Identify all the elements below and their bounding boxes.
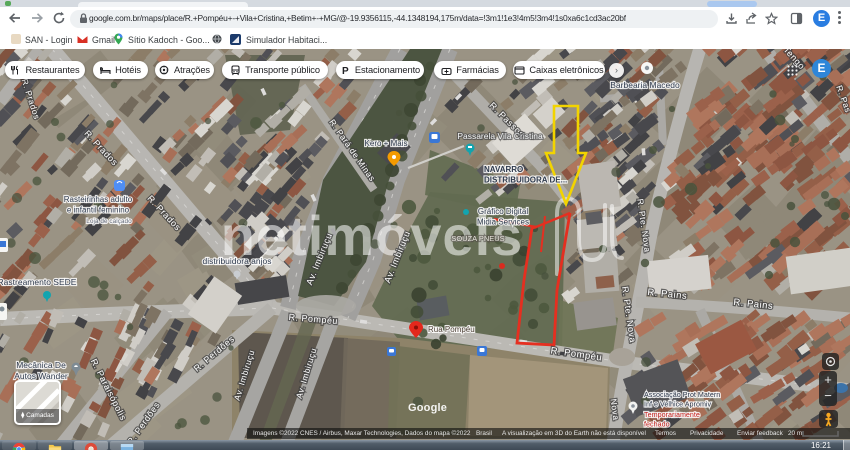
svg-text:e infantil feminino: e infantil feminino — [67, 206, 130, 215]
svg-text:Temporariamente: Temporariamente — [644, 410, 700, 419]
svg-text:Mecânica De: Mecânica De — [16, 360, 66, 370]
svg-text:DISTRIBUIDORA DE...: DISTRIBUIDORA DE... — [484, 176, 567, 185]
svg-text:NAVARRO: NAVARRO — [484, 165, 523, 174]
svg-text:Kero + Mais: Kero + Mais — [365, 139, 408, 148]
svg-text:Rastreamento SEDE: Rastreamento SEDE — [0, 277, 77, 287]
svg-text:Inf e Velhice Apromiv: Inf e Velhice Apromiv — [644, 400, 712, 409]
svg-text:Google: Google — [408, 402, 447, 414]
svg-text:Midia Services: Midia Services — [477, 218, 529, 227]
svg-text:Rasteirinhas adulto: Rasteirinhas adulto — [64, 195, 133, 204]
svg-text:Rua Pompéu: Rua Pompéu — [428, 325, 475, 334]
svg-text:Loja de calçado: Loja de calçado — [86, 218, 132, 225]
svg-text:Barbearia Macedo: Barbearia Macedo — [610, 80, 680, 90]
svg-text:Passarela Vila Cristina: Passarela Vila Cristina — [457, 131, 543, 141]
svg-text:Gráfico Digital: Gráfico Digital — [478, 207, 528, 216]
svg-text:Associação Prot Matern: Associação Prot Matern — [644, 390, 720, 399]
svg-text:SOUZA PNEUS: SOUZA PNEUS — [451, 234, 504, 243]
svg-text:P: P — [342, 66, 349, 76]
svg-text:distribuidora anjos: distribuidora anjos — [203, 256, 272, 266]
